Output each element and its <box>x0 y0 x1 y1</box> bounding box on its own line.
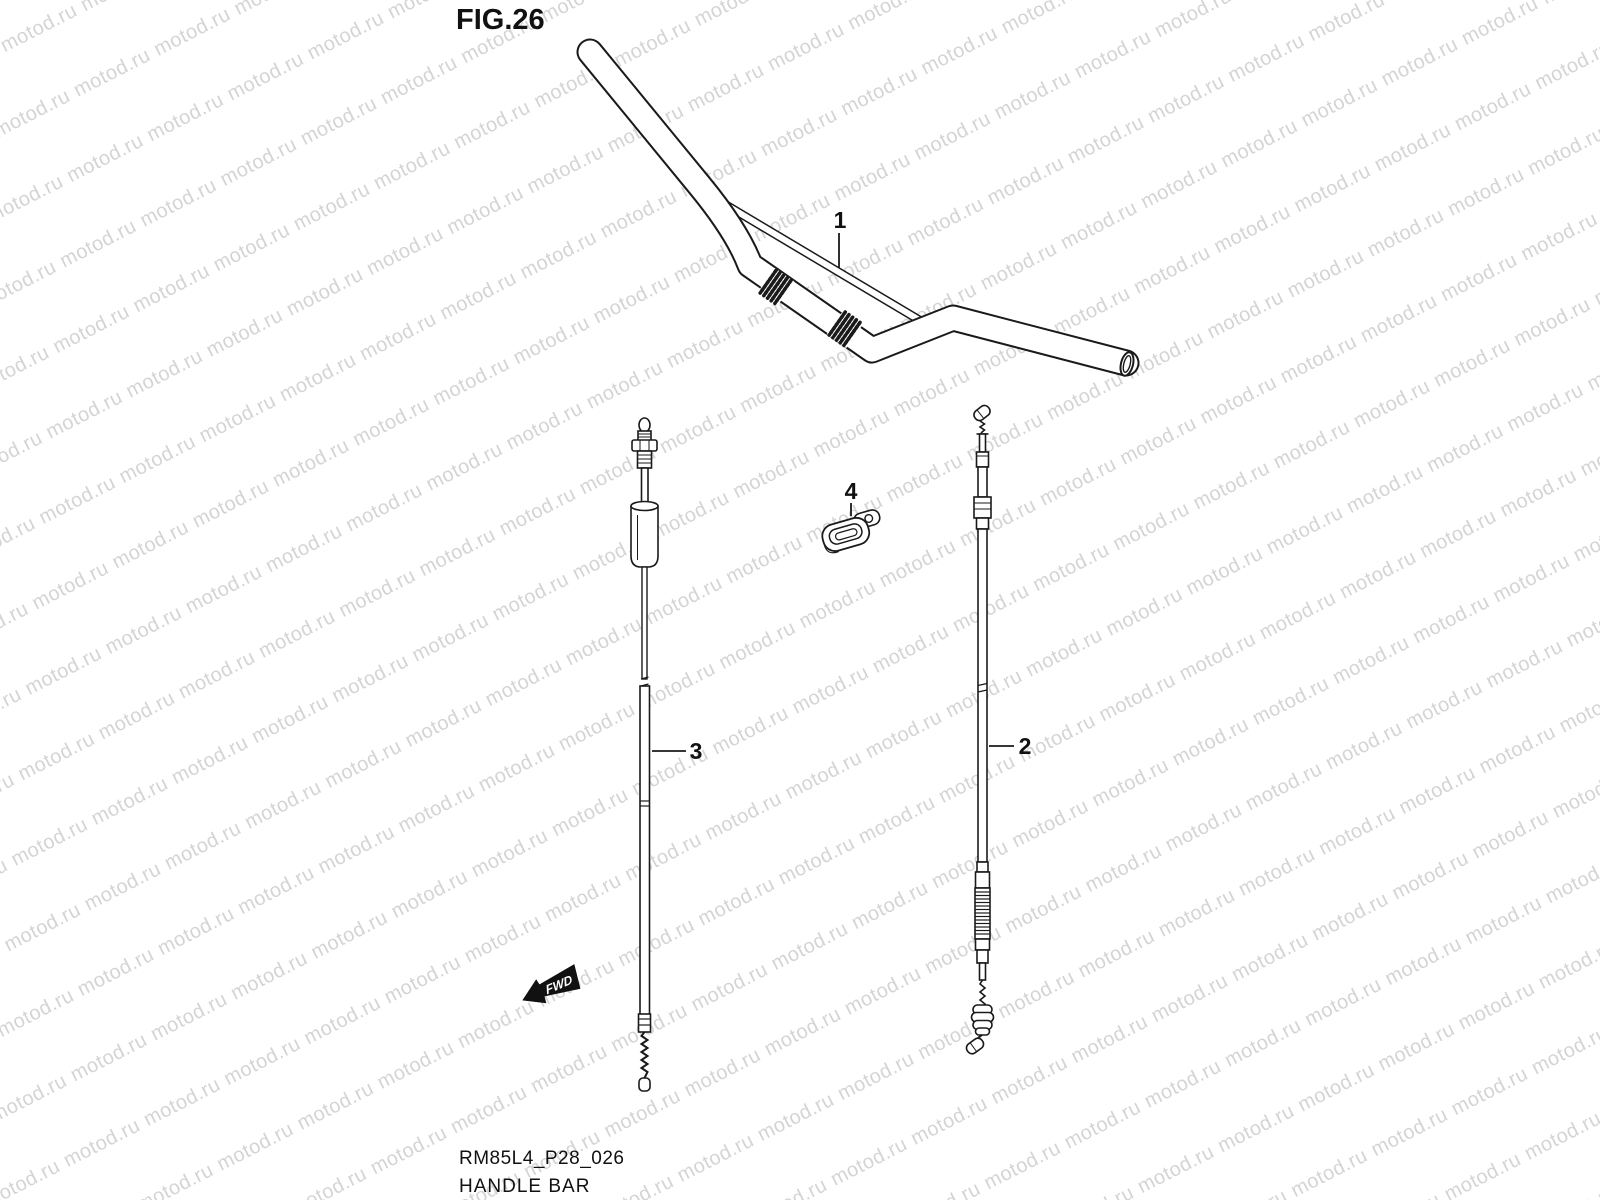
figure-code: RM85L4_P28_026 <box>459 1148 624 1170</box>
parts-diagram-page: motod.rumotod.rumotod.rumotod.rumotod.ru… <box>0 0 1600 1200</box>
diagram-canvas: FWD 1 2 3 4 <box>0 0 1600 1200</box>
cable-guide-drawing <box>819 508 886 555</box>
fwd-arrow: FWD <box>517 963 584 1011</box>
part-label-4: 4 <box>845 478 858 504</box>
part-label-1: 1 <box>834 207 847 233</box>
throttle-cable-drawing <box>631 418 658 1091</box>
handlebar-drawing <box>590 52 1136 377</box>
part-label-3: 3 <box>690 738 703 764</box>
figure-name: HANDLE BAR <box>459 1176 590 1198</box>
part-label-2: 2 <box>1019 733 1032 759</box>
clutch-cable-drawing <box>964 403 993 1055</box>
